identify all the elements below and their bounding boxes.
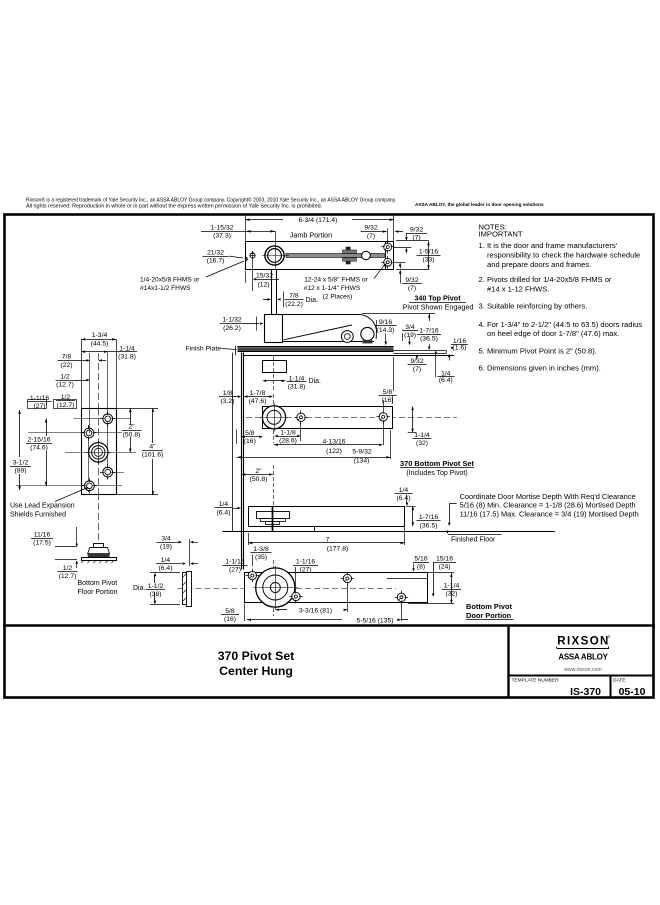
svg-text:(32): (32) [445, 591, 457, 598]
svg-text:Center Hung: Center Hung [219, 664, 293, 678]
svg-text:4": 4" [149, 443, 156, 450]
svg-text:(35): (35) [255, 554, 267, 561]
svg-text:1-5/16: 1-5/16 [419, 249, 438, 256]
svg-text:5/16: 5/16 [414, 555, 427, 562]
svg-text:2. Pivots drilled for 1/4-20x5: 2. Pivots drilled for 1/4-20x5/8 FHMS or [479, 275, 612, 284]
svg-text:(17.5): (17.5) [33, 540, 51, 547]
svg-text:(3.2): (3.2) [221, 398, 235, 405]
svg-text:4. For 1-3/4" to 2-1/2" (44.5: 4. For 1-3/4" to 2-1/2" (44.5 to 63.5) d… [479, 320, 643, 329]
svg-text:1-1/2: 1-1/2 [148, 583, 164, 590]
svg-text:9/32: 9/32 [410, 358, 423, 365]
svg-text:3. Suitable reinforcing by oth: 3. Suitable reinforcing by others. [479, 302, 588, 311]
svg-text:(6.4): (6.4) [159, 565, 173, 572]
svg-text:1-1/16: 1-1/16 [225, 559, 244, 566]
svg-text:(6.4): (6.4) [217, 509, 231, 516]
svg-text:(89): (89) [14, 468, 26, 475]
svg-text:IS-370: IS-370 [570, 686, 601, 698]
svg-text:1-1/32: 1-1/32 [222, 317, 241, 324]
svg-text:9/16: 9/16 [379, 319, 392, 326]
svg-text:1. It is the door and frame ma: 1. It is the door and frame manufacturer… [479, 241, 618, 250]
svg-text:(27): (27) [33, 403, 45, 410]
svg-text:2": 2" [128, 423, 135, 430]
svg-text:Shields Furnished: Shields Furnished [10, 512, 66, 519]
svg-text:(101.6): (101.6) [142, 452, 164, 459]
svg-text:(6.4): (6.4) [397, 495, 411, 502]
svg-text:1-7/16: 1-7/16 [419, 328, 438, 335]
svg-text:12-24 x 5/8" FHMS or: 12-24 x 5/8" FHMS or [304, 277, 368, 284]
svg-text:15/16: 15/16 [436, 555, 453, 562]
svg-text:7/8: 7/8 [289, 293, 299, 300]
svg-text:ASSA ABLOY, the global leader: ASSA ABLOY, the global leader in door op… [415, 202, 544, 207]
svg-text:Jamb Portion: Jamb Portion [290, 231, 332, 240]
svg-text:and prepare doors and frames.: and prepare doors and frames. [487, 260, 591, 269]
svg-text:3-1/2: 3-1/2 [13, 459, 29, 466]
svg-text:(22.2): (22.2) [285, 301, 303, 308]
svg-text:(12.7): (12.7) [56, 382, 74, 389]
svg-text:5/16 (8) Min. Clearance = 1-1/: 5/16 (8) Min. Clearance = 1-1/8 (28.6) M… [460, 501, 636, 510]
svg-text:(27): (27) [229, 567, 241, 574]
svg-text:1-7/8: 1-7/8 [250, 390, 266, 397]
svg-text:3-3/16 (81): 3-3/16 (81) [299, 608, 332, 615]
svg-text:1/4: 1/4 [219, 501, 229, 508]
svg-text:(24): (24) [438, 564, 450, 571]
svg-text:(12): (12) [257, 281, 269, 288]
svg-text:(19): (19) [160, 544, 172, 551]
svg-text:Use Lead Expansion: Use Lead Expansion [10, 503, 75, 510]
svg-text:#12 x 1-1/4" FHWS: #12 x 1-1/4" FHWS [304, 285, 361, 292]
svg-text:1/4-20x5/8 FHMS or: 1/4-20x5/8 FHMS or [140, 277, 200, 284]
svg-text:5. Minimum Pivot Point is 2" (: 5. Minimum Pivot Point is 2" (50.8). [479, 346, 597, 355]
svg-text:(16.7): (16.7) [207, 258, 225, 265]
svg-text:1/2: 1/2 [63, 565, 73, 572]
svg-text:(16): (16) [381, 397, 393, 404]
svg-text:5-9/32: 5-9/32 [352, 448, 371, 455]
svg-text:All rights reserved. Reproduct: All rights reserved. Reproduction in who… [26, 204, 322, 210]
svg-text:(1.6): (1.6) [453, 344, 467, 351]
svg-text:(7): (7) [408, 285, 416, 292]
svg-text:Finished Floor: Finished Floor [451, 536, 496, 543]
svg-text:1-3/4: 1-3/4 [92, 332, 108, 339]
svg-text:responsibility to check the ha: responsibility to check the hardware sch… [487, 251, 640, 260]
svg-text:(47.6): (47.6) [249, 398, 267, 405]
svg-text:IMPORTANT: IMPORTANT [479, 230, 523, 239]
svg-text:(19): (19) [404, 332, 416, 339]
svg-text:2": 2" [255, 468, 262, 475]
svg-text:1-1/16: 1-1/16 [296, 559, 315, 566]
svg-text:5-5/16 (135): 5-5/16 (135) [356, 618, 393, 625]
svg-text:2-15/16: 2-15/16 [27, 436, 50, 443]
svg-text:Floor Portion: Floor Portion [78, 589, 118, 596]
svg-text:(8): (8) [417, 564, 425, 571]
svg-text:®: ® [608, 634, 611, 639]
svg-text:(50.8): (50.8) [250, 476, 268, 483]
svg-text:(14.3): (14.3) [377, 327, 395, 334]
svg-text:(44.5): (44.5) [91, 340, 109, 347]
svg-text:(16): (16) [244, 438, 256, 445]
svg-text:9/32: 9/32 [410, 227, 423, 234]
svg-text:1-1/4: 1-1/4 [444, 582, 460, 589]
svg-text:5/8: 5/8 [245, 430, 255, 437]
svg-text:(31.8): (31.8) [288, 383, 306, 390]
svg-text:(6.4): (6.4) [439, 377, 453, 384]
svg-text:(12.7): (12.7) [57, 402, 75, 409]
svg-text:(36.5): (36.5) [420, 336, 438, 343]
svg-text:Dia.: Dia. [306, 297, 319, 304]
svg-text:(7): (7) [367, 233, 375, 240]
svg-text:(122): (122) [326, 448, 342, 455]
svg-text:(37.3): (37.3) [213, 233, 231, 240]
svg-text:1-1/8: 1-1/8 [280, 429, 296, 436]
svg-text:Pivot Shown Engaged: Pivot Shown Engaged [403, 303, 474, 312]
svg-text:3/4: 3/4 [161, 535, 171, 542]
svg-text:DATE: DATE [613, 678, 625, 684]
svg-text:Dia.: Dia. [133, 585, 146, 592]
svg-text:#14x1-1/2 FHWS: #14x1-1/2 FHWS [140, 285, 191, 292]
svg-text:RIXSON: RIXSON [557, 636, 610, 648]
svg-text:7/8: 7/8 [62, 354, 72, 361]
svg-text:(36.5): (36.5) [420, 522, 438, 529]
svg-text:Rixson® is a registered tradem: Rixson® is a registered trademark of Yal… [26, 196, 396, 203]
svg-text:1/4: 1/4 [161, 557, 171, 564]
svg-text:Dia.: Dia. [309, 378, 322, 385]
svg-text:(50.8): (50.8) [123, 432, 141, 439]
svg-text:9/32: 9/32 [405, 277, 418, 284]
svg-text:(27): (27) [299, 567, 311, 574]
svg-text:(2 Places): (2 Places) [323, 294, 353, 301]
svg-text:(12.7): (12.7) [59, 573, 77, 580]
svg-text:(74.6): (74.6) [30, 445, 48, 452]
svg-text:11/16 (17.5) Max. Clearance =: 11/16 (17.5) Max. Clearance = 3/4 (19) M… [460, 510, 639, 519]
svg-text:(134): (134) [354, 458, 370, 465]
svg-text:Bottom Pivot: Bottom Pivot [466, 602, 513, 611]
svg-text:(7): (7) [413, 366, 421, 373]
svg-text:1-3/8: 1-3/8 [253, 546, 269, 553]
svg-text:(38): (38) [149, 591, 161, 598]
svg-text:5/8: 5/8 [383, 389, 393, 396]
svg-text:(33): (33) [422, 257, 434, 264]
svg-text:(26.2): (26.2) [223, 325, 241, 332]
svg-text:6. Dimensions given in inches: 6. Dimensions given in inches (mm). [479, 364, 601, 373]
svg-text:9/32: 9/32 [364, 225, 377, 232]
svg-text:1/2: 1/2 [60, 373, 70, 380]
svg-text:ASSA ABLOY: ASSA ABLOY [558, 653, 608, 662]
svg-text:340 Top Pivot: 340 Top Pivot [414, 294, 461, 303]
svg-text:#14 x 1-12 FHWS.: #14 x 1-12 FHWS. [487, 284, 549, 293]
svg-text:15/32: 15/32 [256, 273, 273, 280]
svg-text:6-3/4 (171.4): 6-3/4 (171.4) [299, 217, 338, 224]
svg-text:21/32: 21/32 [207, 249, 224, 256]
svg-text:www.rixson.com: www.rixson.com [564, 667, 601, 673]
svg-text:1-1/4: 1-1/4 [414, 432, 430, 439]
svg-text:Coordinate Door Mortise Depth: Coordinate Door Mortise Depth With Req'd… [460, 492, 636, 501]
svg-text:5/8: 5/8 [225, 608, 235, 615]
svg-text:1/4: 1/4 [399, 487, 409, 494]
svg-text:(22): (22) [60, 362, 72, 369]
svg-text:Finish Plate: Finish Plate [186, 346, 222, 353]
svg-text:370 Pivot Set: 370 Pivot Set [218, 649, 295, 663]
svg-text:(32): (32) [416, 440, 428, 447]
svg-text:on heel edge of door 1-7/8" (4: on heel edge of door 1-7/8" (47.6) max. [487, 329, 619, 338]
svg-text:TEMPLATE NUMBER: TEMPLATE NUMBER [512, 678, 560, 684]
svg-text:Bottom Pivot: Bottom Pivot [78, 580, 118, 587]
svg-text:05-10: 05-10 [619, 686, 646, 698]
svg-text:(177.8): (177.8) [327, 546, 349, 553]
svg-text:(28.6): (28.6) [279, 438, 297, 445]
svg-text:3/4: 3/4 [405, 324, 415, 331]
svg-text:(31.8): (31.8) [118, 353, 136, 360]
svg-text:370 Bottom Pivot Set: 370 Bottom Pivot Set [400, 459, 474, 468]
svg-text:11/16: 11/16 [34, 531, 51, 538]
svg-text:(16): (16) [224, 616, 236, 623]
svg-text:1-15/32: 1-15/32 [210, 225, 233, 232]
svg-text:Door Portion: Door Portion [466, 611, 512, 620]
svg-text:1/8: 1/8 [223, 390, 233, 397]
svg-text:(Includes Top Pivot): (Includes Top Pivot) [406, 470, 467, 477]
